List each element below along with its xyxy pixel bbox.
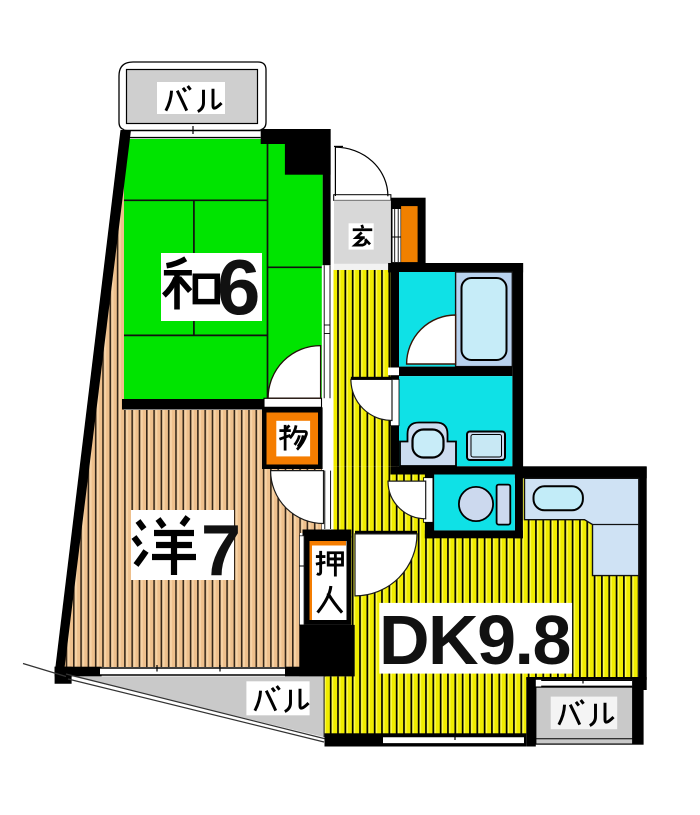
svg-text:6: 6 [217, 243, 260, 331]
svg-text:7: 7 [201, 511, 241, 591]
svg-text:DK9.8: DK9.8 [379, 601, 570, 679]
